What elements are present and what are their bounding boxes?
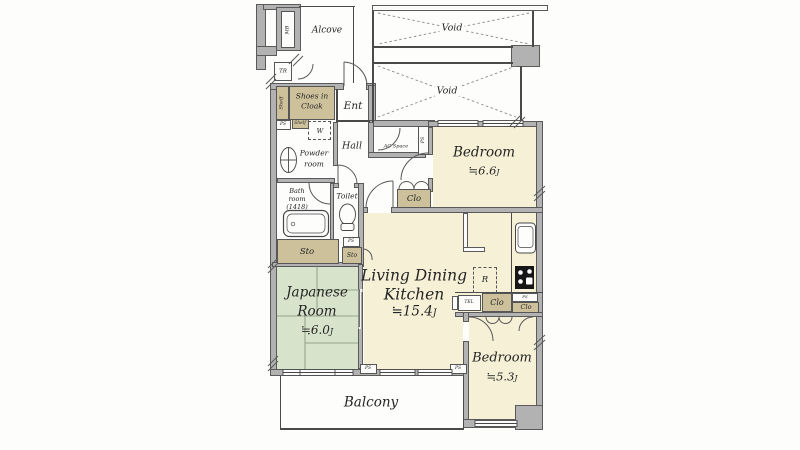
alcove-right-line: [353, 6, 354, 83]
bathroom-label: (1418): [286, 204, 308, 211]
powder-room-label: Powder: [300, 149, 329, 157]
shelf-label: Shelf: [280, 96, 285, 109]
hall-label: Hall: [342, 141, 362, 151]
void-right-line: [532, 11, 534, 47]
entrance-label: Ent: [344, 101, 363, 112]
pipe-space-label: PS: [522, 295, 527, 299]
void-left-line: [372, 11, 374, 122]
wall-void-block: [511, 45, 540, 67]
wall: [256, 4, 266, 70]
floor-plan: Alcove Void Void MB TR Shelf Shoes in Cl…: [0, 0, 800, 450]
pipe-space-label: PS: [422, 137, 427, 143]
bathroom-label: Bath: [289, 188, 304, 195]
japanese-room-label: Room: [297, 305, 336, 319]
kitchen-counter-line: [511, 213, 512, 293]
pipe-space-label: PS: [365, 367, 371, 372]
ac-space-label: AC Space: [384, 145, 408, 150]
balcony-label: Balcony: [344, 396, 398, 410]
bedroom1-label: Bedroom: [453, 146, 515, 160]
bathtub-icon: [284, 211, 329, 237]
balcony-bottom-line: [280, 428, 464, 430]
pipe-space-label: PS: [280, 123, 286, 128]
telephone-label: TEL: [464, 301, 473, 306]
ldk-label: Kitchen: [384, 287, 445, 303]
wall-exterior-right: [536, 121, 543, 428]
alcove-label: Alcove: [312, 27, 342, 36]
shoes-in-cloak-label: Shoes in: [296, 92, 328, 100]
pipe-space-label: PS: [348, 240, 354, 245]
shelf-label: Shelf: [294, 122, 306, 127]
powder-room-label: room: [304, 160, 324, 168]
refrigerator-label: R: [482, 276, 488, 285]
void-top-beam: [372, 5, 548, 11]
wall: [333, 122, 338, 166]
void-label: Void: [440, 23, 465, 33]
void-right-line: [520, 66, 522, 122]
entrance-step-line: [336, 120, 370, 122]
void-band-line: [373, 62, 513, 64]
wall-bedroom1-top: [428, 121, 543, 127]
storage-label: Sto: [300, 248, 314, 257]
ldk-size: ≒15.4J: [391, 305, 436, 319]
void-label: Void: [435, 86, 460, 96]
bedroom2-label: Bedroom: [472, 352, 532, 365]
bedroom1-size: ≒6.6J: [468, 165, 499, 177]
wall: [277, 178, 335, 183]
bathroom-label: room: [288, 196, 305, 203]
wall: [463, 312, 469, 322]
trunk-room-label: TR: [279, 69, 287, 75]
toilet-icon: [340, 204, 356, 231]
toilet-label: Toilet: [336, 192, 357, 200]
wall: [330, 183, 334, 240]
alcove-top-line: [299, 6, 355, 7]
balcony-right-line: [463, 376, 464, 428]
wall-corner-block: [515, 405, 543, 430]
void-band-line: [373, 46, 513, 48]
japanese-room-size: ≒6.0J: [301, 324, 333, 336]
shoes-in-cloak-label: Cloak: [301, 102, 323, 110]
meter-box-label: MB: [286, 26, 291, 35]
kitchen-partition: [463, 213, 468, 250]
japanese-room-label: Japanese: [286, 286, 348, 300]
closet-label: Clo: [521, 304, 532, 311]
wall-exterior-left: [270, 89, 277, 376]
wall: [256, 46, 277, 56]
ldk-label: Living Dining: [361, 268, 467, 284]
kitchen-partition: [463, 247, 485, 252]
storage-label: Sto: [347, 253, 357, 259]
closet-label: Clo: [490, 299, 504, 307]
bedroom2-size: ≒5.3J: [486, 371, 517, 383]
washbasin-icon: [281, 148, 297, 173]
pipe-space-label: PS: [455, 367, 461, 372]
entrance-divider: [336, 89, 338, 120]
washer-label: W: [317, 128, 324, 135]
balcony-left-line: [280, 376, 281, 430]
closet-label: Clo: [407, 195, 421, 204]
